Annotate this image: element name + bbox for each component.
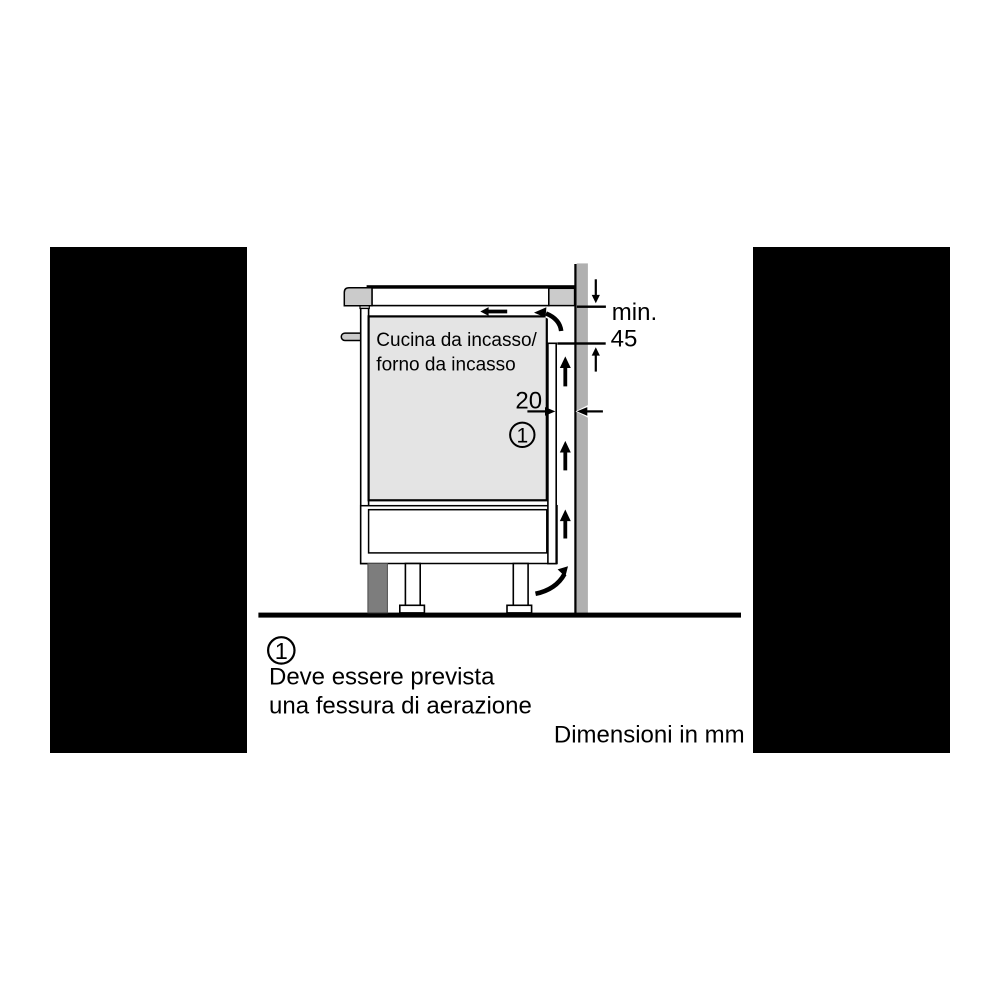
svg-text:1: 1: [275, 638, 288, 664]
svg-text:Dimensioni in mm: Dimensioni in mm: [554, 721, 745, 748]
svg-text:Cucina da incasso/: Cucina da incasso/: [376, 330, 537, 351]
svg-text:1: 1: [516, 424, 528, 447]
svg-text:una fessura di aerazione: una fessura di aerazione: [269, 693, 532, 720]
svg-text:20: 20: [515, 387, 542, 414]
svg-text:forno da incasso: forno da incasso: [376, 355, 515, 376]
svg-text:min.: min.: [612, 299, 657, 326]
svg-text:Deve essere prevista: Deve essere prevista: [269, 664, 495, 691]
svg-text:45: 45: [611, 325, 638, 352]
